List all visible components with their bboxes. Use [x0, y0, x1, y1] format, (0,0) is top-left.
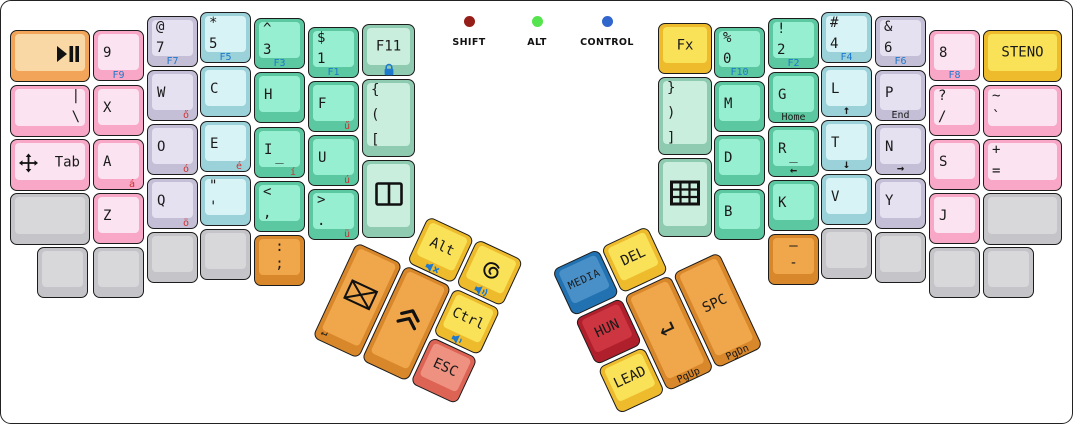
- key-legend: ~: [992, 89, 1000, 104]
- key-legend: ]: [667, 131, 675, 146]
- key-legend: .: [317, 214, 325, 229]
- key-legend: 7: [156, 41, 164, 56]
- key-p[interactable]: PEnd: [875, 70, 926, 121]
- key-legend: Home: [781, 112, 805, 123]
- key-w[interactable]: Wő: [147, 70, 198, 121]
- key-legend: C: [210, 82, 218, 97]
- key-legend: F5: [219, 52, 231, 63]
- key-legend: @: [156, 20, 164, 35]
- key-legend: 3: [263, 43, 271, 58]
- key-legend: P: [885, 86, 893, 101]
- keycap-surface: [988, 251, 1029, 287]
- key-legend: ": [209, 179, 217, 194]
- key-o[interactable]: Oó: [147, 124, 198, 175]
- control-led-label: CONTROL: [565, 37, 649, 48]
- key-legend: Fx: [677, 38, 694, 53]
- keyboard-layout-view: SHIFT ALT CONTROL |\Tab9F9XAáZ@7F7WőOóQö…: [0, 0, 1073, 424]
- key-blank[interactable]: [983, 193, 1062, 245]
- keycap-surface: [988, 197, 1057, 234]
- keypad-grid-icon: [670, 180, 700, 205]
- key-legend: ↵: [318, 326, 329, 340]
- key-close-brackets[interactable]: })]: [658, 77, 712, 155]
- key-legend: F10: [730, 67, 748, 78]
- key-legend: Y: [885, 194, 893, 209]
- key-legend: \: [72, 110, 80, 125]
- key-legend: End: [891, 110, 909, 121]
- key-legend: F11: [376, 39, 401, 54]
- key-8[interactable]: 8F8: [929, 30, 980, 81]
- key-z[interactable]: Z: [93, 193, 144, 244]
- key-play-pause[interactable]: [10, 30, 90, 82]
- key-legend: ő: [183, 110, 189, 121]
- key-legend: {: [371, 83, 379, 98]
- window-split-icon: [375, 182, 403, 206]
- key-legend: ): [667, 106, 675, 121]
- key-k[interactable]: K: [768, 180, 819, 231]
- key-legend: ': [209, 200, 217, 215]
- key-blank[interactable]: [200, 229, 251, 280]
- key-legend: *: [209, 16, 217, 31]
- key-legend: R: [778, 142, 786, 157]
- key-asterisk-5[interactable]: *5F5: [200, 12, 251, 63]
- key-c[interactable]: C: [200, 66, 251, 117]
- key-legend: L: [831, 82, 839, 97]
- key-greaterthan-period[interactable]: >.ü: [308, 189, 359, 240]
- key-legend: 2: [777, 43, 785, 58]
- key-legend: 8: [939, 46, 947, 61]
- key-legend: 1: [317, 52, 325, 67]
- key-blank[interactable]: [10, 193, 90, 245]
- key-legend: E: [210, 137, 218, 152]
- key-legend: I: [264, 143, 272, 158]
- key-blank[interactable]: [37, 247, 88, 298]
- key-legend: G: [778, 88, 786, 103]
- key-legend: >: [317, 193, 325, 208]
- key-legend: ű: [344, 121, 350, 132]
- key-legend: ^: [263, 22, 271, 37]
- key-dollar-1[interactable]: $1F1: [308, 27, 359, 78]
- key-caret-3[interactable]: ^3F3: [254, 18, 305, 69]
- keycap-surface: [880, 236, 921, 272]
- key-open-brackets[interactable]: {([: [362, 79, 415, 157]
- key-legend: }: [667, 81, 675, 96]
- key-legend: B: [724, 205, 732, 220]
- key-legend: ú: [344, 175, 350, 186]
- key-keypad[interactable]: [658, 158, 712, 237]
- key-legend: U: [318, 151, 326, 166]
- key-legend: V: [831, 190, 839, 205]
- key-exclam-2[interactable]: !2F2: [768, 18, 819, 69]
- key-legend: (: [371, 108, 379, 123]
- key-v[interactable]: V: [821, 174, 872, 225]
- indicator-control: CONTROL: [565, 16, 649, 48]
- key-hash-4[interactable]: #4F4: [821, 12, 872, 63]
- move-cross-icon: [19, 153, 38, 172]
- key-j[interactable]: J: [929, 193, 980, 244]
- key-legend: F8: [948, 70, 960, 81]
- key-legend: ?: [938, 89, 946, 104]
- key-i[interactable]: I_í: [254, 127, 305, 178]
- key-legend: +: [992, 143, 1000, 158]
- key-legend: Q: [157, 194, 165, 209]
- key-legend: ö: [183, 218, 189, 229]
- key-u[interactable]: Uú: [308, 135, 359, 186]
- key-blank[interactable]: [929, 247, 980, 298]
- key-tilde-backtick[interactable]: ~`: [983, 85, 1062, 137]
- key-b[interactable]: B: [714, 189, 765, 240]
- key-legend: í: [290, 167, 296, 178]
- key-legend: F: [318, 97, 326, 112]
- key-legend: [: [371, 133, 379, 148]
- key-legend: W: [157, 86, 165, 101]
- key-legend: _: [789, 148, 797, 163]
- keycap-surface: [42, 251, 83, 287]
- alt-led-icon: [532, 16, 543, 27]
- key-legend: –: [789, 239, 797, 254]
- key-window-split[interactable]: [362, 160, 415, 238]
- key-legend: =: [992, 164, 1000, 179]
- keycap-surface: [205, 233, 246, 269]
- key-legend: M: [724, 97, 732, 112]
- key-legend: Z: [103, 209, 111, 224]
- key-legend: O: [157, 140, 165, 155]
- key-legend: :: [275, 240, 283, 255]
- key-legend: $: [317, 31, 325, 46]
- key-l[interactable]: L↑: [821, 66, 872, 117]
- key-blank[interactable]: [821, 228, 872, 279]
- key-legend: F1: [327, 67, 339, 78]
- key-lessthan-comma[interactable]: <,: [254, 181, 305, 232]
- key-legend: %: [723, 31, 731, 46]
- key-legend: 0: [723, 52, 731, 67]
- key-legend: 9: [103, 46, 111, 61]
- key-x[interactable]: X: [93, 85, 144, 136]
- key-legend: F2: [787, 58, 799, 69]
- play-pause-icon: [54, 45, 80, 63]
- key-legend: _: [275, 149, 283, 164]
- key-a[interactable]: Aá: [93, 139, 144, 190]
- key-legend: ,: [263, 206, 271, 221]
- key-legend: ó: [183, 164, 189, 175]
- key-legend: #: [830, 16, 838, 31]
- key-legend: F3: [273, 58, 285, 69]
- key-legend: S: [939, 155, 947, 170]
- key-steno[interactable]: STENO: [983, 30, 1062, 82]
- key-legend: 6: [884, 41, 892, 56]
- lock-icon: [383, 63, 395, 76]
- key-legend: &: [884, 20, 892, 35]
- key-legend: !: [777, 22, 785, 37]
- key-legend: é: [236, 161, 242, 172]
- shift-led-icon: [464, 16, 475, 27]
- key-legend: N: [885, 140, 893, 155]
- key-h[interactable]: H: [254, 72, 305, 123]
- key-dash[interactable]: –-: [768, 234, 819, 285]
- key-percent-0[interactable]: %0F10: [714, 27, 765, 78]
- key-legend: D: [724, 151, 732, 166]
- key-colon-semicolon[interactable]: :;: [254, 235, 305, 286]
- key-legend: ↓: [843, 158, 850, 171]
- key-blank[interactable]: [147, 232, 198, 283]
- key-legend: ←: [790, 164, 797, 177]
- key-g[interactable]: GHome: [768, 72, 819, 123]
- key-t[interactable]: T↓: [821, 120, 872, 171]
- keycap-surface: [826, 232, 867, 268]
- key-legend: ü: [344, 229, 350, 240]
- key-legend: Tab: [55, 155, 80, 170]
- key-legend: ;: [275, 257, 283, 272]
- key-m[interactable]: M: [714, 81, 765, 132]
- key-r[interactable]: R_←: [768, 126, 819, 177]
- key-legend: á: [129, 179, 135, 190]
- key-legend: F6: [894, 56, 906, 67]
- key-legend: `: [992, 110, 1000, 125]
- key-legend: X: [103, 101, 111, 116]
- key-legend: T: [831, 136, 839, 151]
- key-blank[interactable]: [93, 247, 144, 298]
- key-legend: →: [897, 162, 904, 175]
- key-legend: <: [263, 185, 271, 200]
- key-at-7[interactable]: @7F7: [147, 16, 198, 67]
- key-legend: J: [939, 209, 947, 224]
- key-blank[interactable]: [875, 232, 926, 283]
- key-legend: F4: [840, 52, 852, 63]
- keycap-surface: [15, 197, 85, 234]
- key-fx[interactable]: Fx: [658, 23, 712, 74]
- key-pipe-backslash[interactable]: |\: [10, 85, 90, 137]
- key-f[interactable]: Fű: [308, 81, 359, 132]
- key-n[interactable]: N→: [875, 124, 926, 175]
- key-question-slash[interactable]: ?/: [929, 85, 980, 136]
- keycap-surface: [98, 251, 139, 287]
- control-led-icon: [602, 16, 613, 27]
- key-plus-equals[interactable]: +=: [983, 139, 1062, 191]
- key-legend: 4: [830, 37, 838, 52]
- key-d[interactable]: D: [714, 135, 765, 186]
- key-legend: ↑: [843, 104, 850, 117]
- key-e[interactable]: Eé: [200, 121, 251, 172]
- keycap-surface: [934, 251, 975, 287]
- key-y[interactable]: Y: [875, 178, 926, 229]
- key-legend: /: [938, 110, 946, 125]
- key-q[interactable]: Qö: [147, 178, 198, 229]
- key-doublequote-quote[interactable]: "': [200, 175, 251, 226]
- key-s[interactable]: S: [929, 139, 980, 190]
- key-legend: -: [789, 256, 797, 271]
- key-legend: |: [72, 89, 80, 104]
- keycap-surface: [152, 236, 193, 272]
- key-amp-6[interactable]: &6F6: [875, 16, 926, 67]
- key-tab[interactable]: Tab: [10, 139, 90, 191]
- key-legend: F7: [166, 56, 178, 67]
- key-legend: 5: [209, 37, 217, 52]
- key-legend: F9: [112, 70, 124, 81]
- key-legend: K: [778, 196, 786, 211]
- key-9[interactable]: 9F9: [93, 30, 144, 81]
- key-legend: STENO: [1001, 45, 1043, 60]
- key-legend: H: [264, 88, 272, 103]
- key-blank[interactable]: [983, 247, 1034, 298]
- key-f11[interactable]: F11: [362, 24, 415, 76]
- key-legend: A: [103, 155, 111, 170]
